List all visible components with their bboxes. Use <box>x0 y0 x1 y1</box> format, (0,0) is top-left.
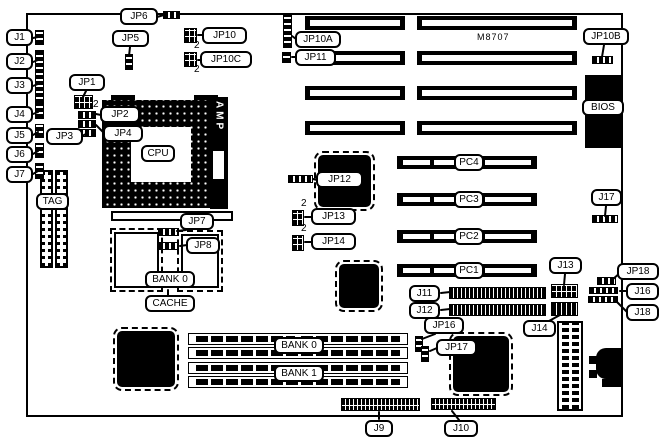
label-j6: J6 <box>6 146 33 163</box>
label-jp16: JP16 <box>424 317 464 334</box>
label-bank1: BANK 1 <box>274 365 324 382</box>
label-pc1: PC1 <box>454 262 484 279</box>
label-tag: TAG <box>36 193 69 210</box>
label-jp10: JP10 <box>202 27 247 44</box>
label-j4: J4 <box>6 106 33 123</box>
label-bank0: BANK 0 <box>274 337 324 354</box>
label-j16: J16 <box>626 283 659 300</box>
label-pc3: PC3 <box>454 191 484 208</box>
label-jp1: JP1 <box>69 74 105 91</box>
label-j17: J17 <box>591 189 622 206</box>
label-jp2: JP2 <box>100 106 140 123</box>
label-j3: J3 <box>6 77 33 94</box>
label-j7: J7 <box>6 166 33 183</box>
label-j1: J1 <box>6 29 33 46</box>
label-jp10a: JP10A <box>295 31 341 48</box>
label-jp4: JP4 <box>103 125 143 142</box>
label-pc2: PC2 <box>454 228 484 245</box>
label-pc4: PC4 <box>454 154 484 171</box>
motherboard-diagram: J1 J2 J3 J4 J5 J6 J7 JP6 JP5 JP10 2 JP10… <box>0 0 659 447</box>
label-j13: J13 <box>549 257 582 274</box>
label-j14: J14 <box>523 320 556 337</box>
label-j9: J9 <box>365 420 393 437</box>
label-jp5: JP5 <box>112 30 149 47</box>
label-cpu: CPU <box>141 145 175 162</box>
label-jp6: JP6 <box>120 8 158 25</box>
label-jp13: JP13 <box>311 208 356 225</box>
label-cache: CACHE <box>145 295 195 312</box>
label-j2: J2 <box>6 53 33 70</box>
label-jp18: JP18 <box>617 263 659 280</box>
label-j5: J5 <box>6 127 33 144</box>
label-jp7: JP7 <box>180 213 214 230</box>
label-jp10b: JP10B <box>583 28 629 45</box>
label-j11: J11 <box>409 285 440 302</box>
label-cache-bank0: BANK 0 <box>145 271 195 288</box>
label-j18: J18 <box>626 304 659 321</box>
label-jp17: JP17 <box>436 339 477 356</box>
label-jp8: JP8 <box>186 237 220 254</box>
label-jp14: JP14 <box>311 233 356 250</box>
label-jp10c: JP10C <box>200 51 252 68</box>
label-jp12: JP12 <box>316 171 363 188</box>
label-jp11: JP11 <box>295 49 336 66</box>
label-j10: J10 <box>444 420 478 437</box>
label-bios: BIOS <box>582 99 624 116</box>
label-jp3: JP3 <box>46 128 83 145</box>
